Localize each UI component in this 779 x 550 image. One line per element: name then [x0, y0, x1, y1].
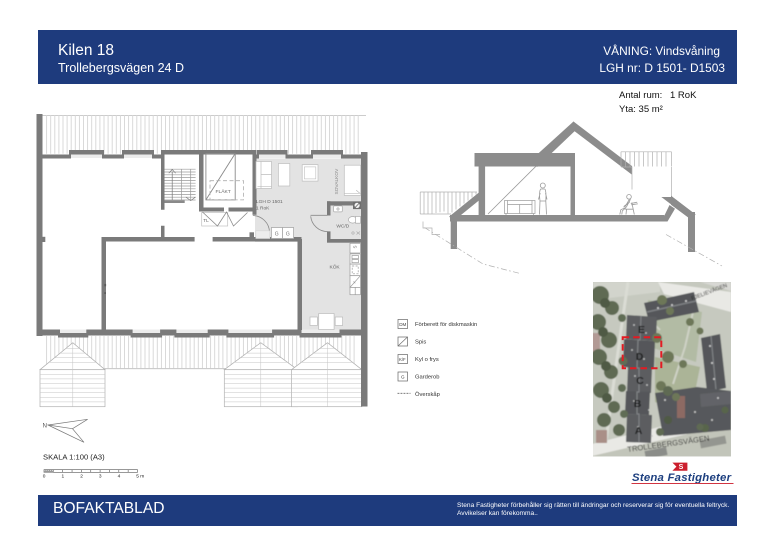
svg-text:Stena Fastigheter: Stena Fastigheter — [632, 472, 732, 484]
svg-text:FLÄKT: FLÄKT — [216, 188, 231, 195]
svg-text:D: D — [636, 351, 644, 363]
svg-text:Överskåp: Överskåp — [415, 391, 440, 398]
svg-text:G: G — [401, 375, 405, 380]
svg-text:G: G — [275, 232, 279, 238]
svg-text:K/F: K/F — [399, 357, 406, 362]
svg-text:1: 1 — [62, 474, 65, 480]
svg-text:2: 2 — [80, 474, 83, 480]
svg-text:0: 0 — [43, 474, 46, 480]
svg-text:4: 4 — [118, 474, 121, 480]
svg-text:KÖK: KÖK — [330, 264, 341, 271]
svg-text:A: A — [635, 425, 643, 437]
svg-text:WC/D: WC/D — [336, 223, 349, 229]
svg-text:S: S — [353, 245, 358, 248]
svg-text:Garderob: Garderob — [415, 375, 440, 381]
svg-text:1 RoK: 1 RoK — [256, 206, 270, 212]
svg-text:B: B — [634, 398, 642, 410]
svg-text:Förberett för diskmaskin: Förberett för diskmaskin — [415, 322, 477, 328]
svg-text:G: G — [286, 232, 290, 238]
svg-text:SOVALKOV: SOVALKOV — [334, 168, 340, 195]
svg-text:Kyl o frys: Kyl o frys — [415, 357, 439, 363]
svg-text:S: S — [679, 464, 684, 471]
svg-text:3: 3 — [99, 474, 102, 480]
svg-text:SKALA 1:100 (A3): SKALA 1:100 (A3) — [43, 452, 105, 461]
svg-text:N: N — [43, 423, 47, 430]
svg-text:E: E — [638, 324, 645, 336]
svg-text:TL: TL — [203, 218, 209, 224]
svg-text:5 m: 5 m — [136, 474, 144, 480]
svg-text:LGH D 1501: LGH D 1501 — [256, 199, 283, 205]
svg-text:C: C — [636, 375, 644, 387]
svg-text:Spis: Spis — [415, 340, 426, 346]
svg-text:DM: DM — [399, 322, 406, 327]
